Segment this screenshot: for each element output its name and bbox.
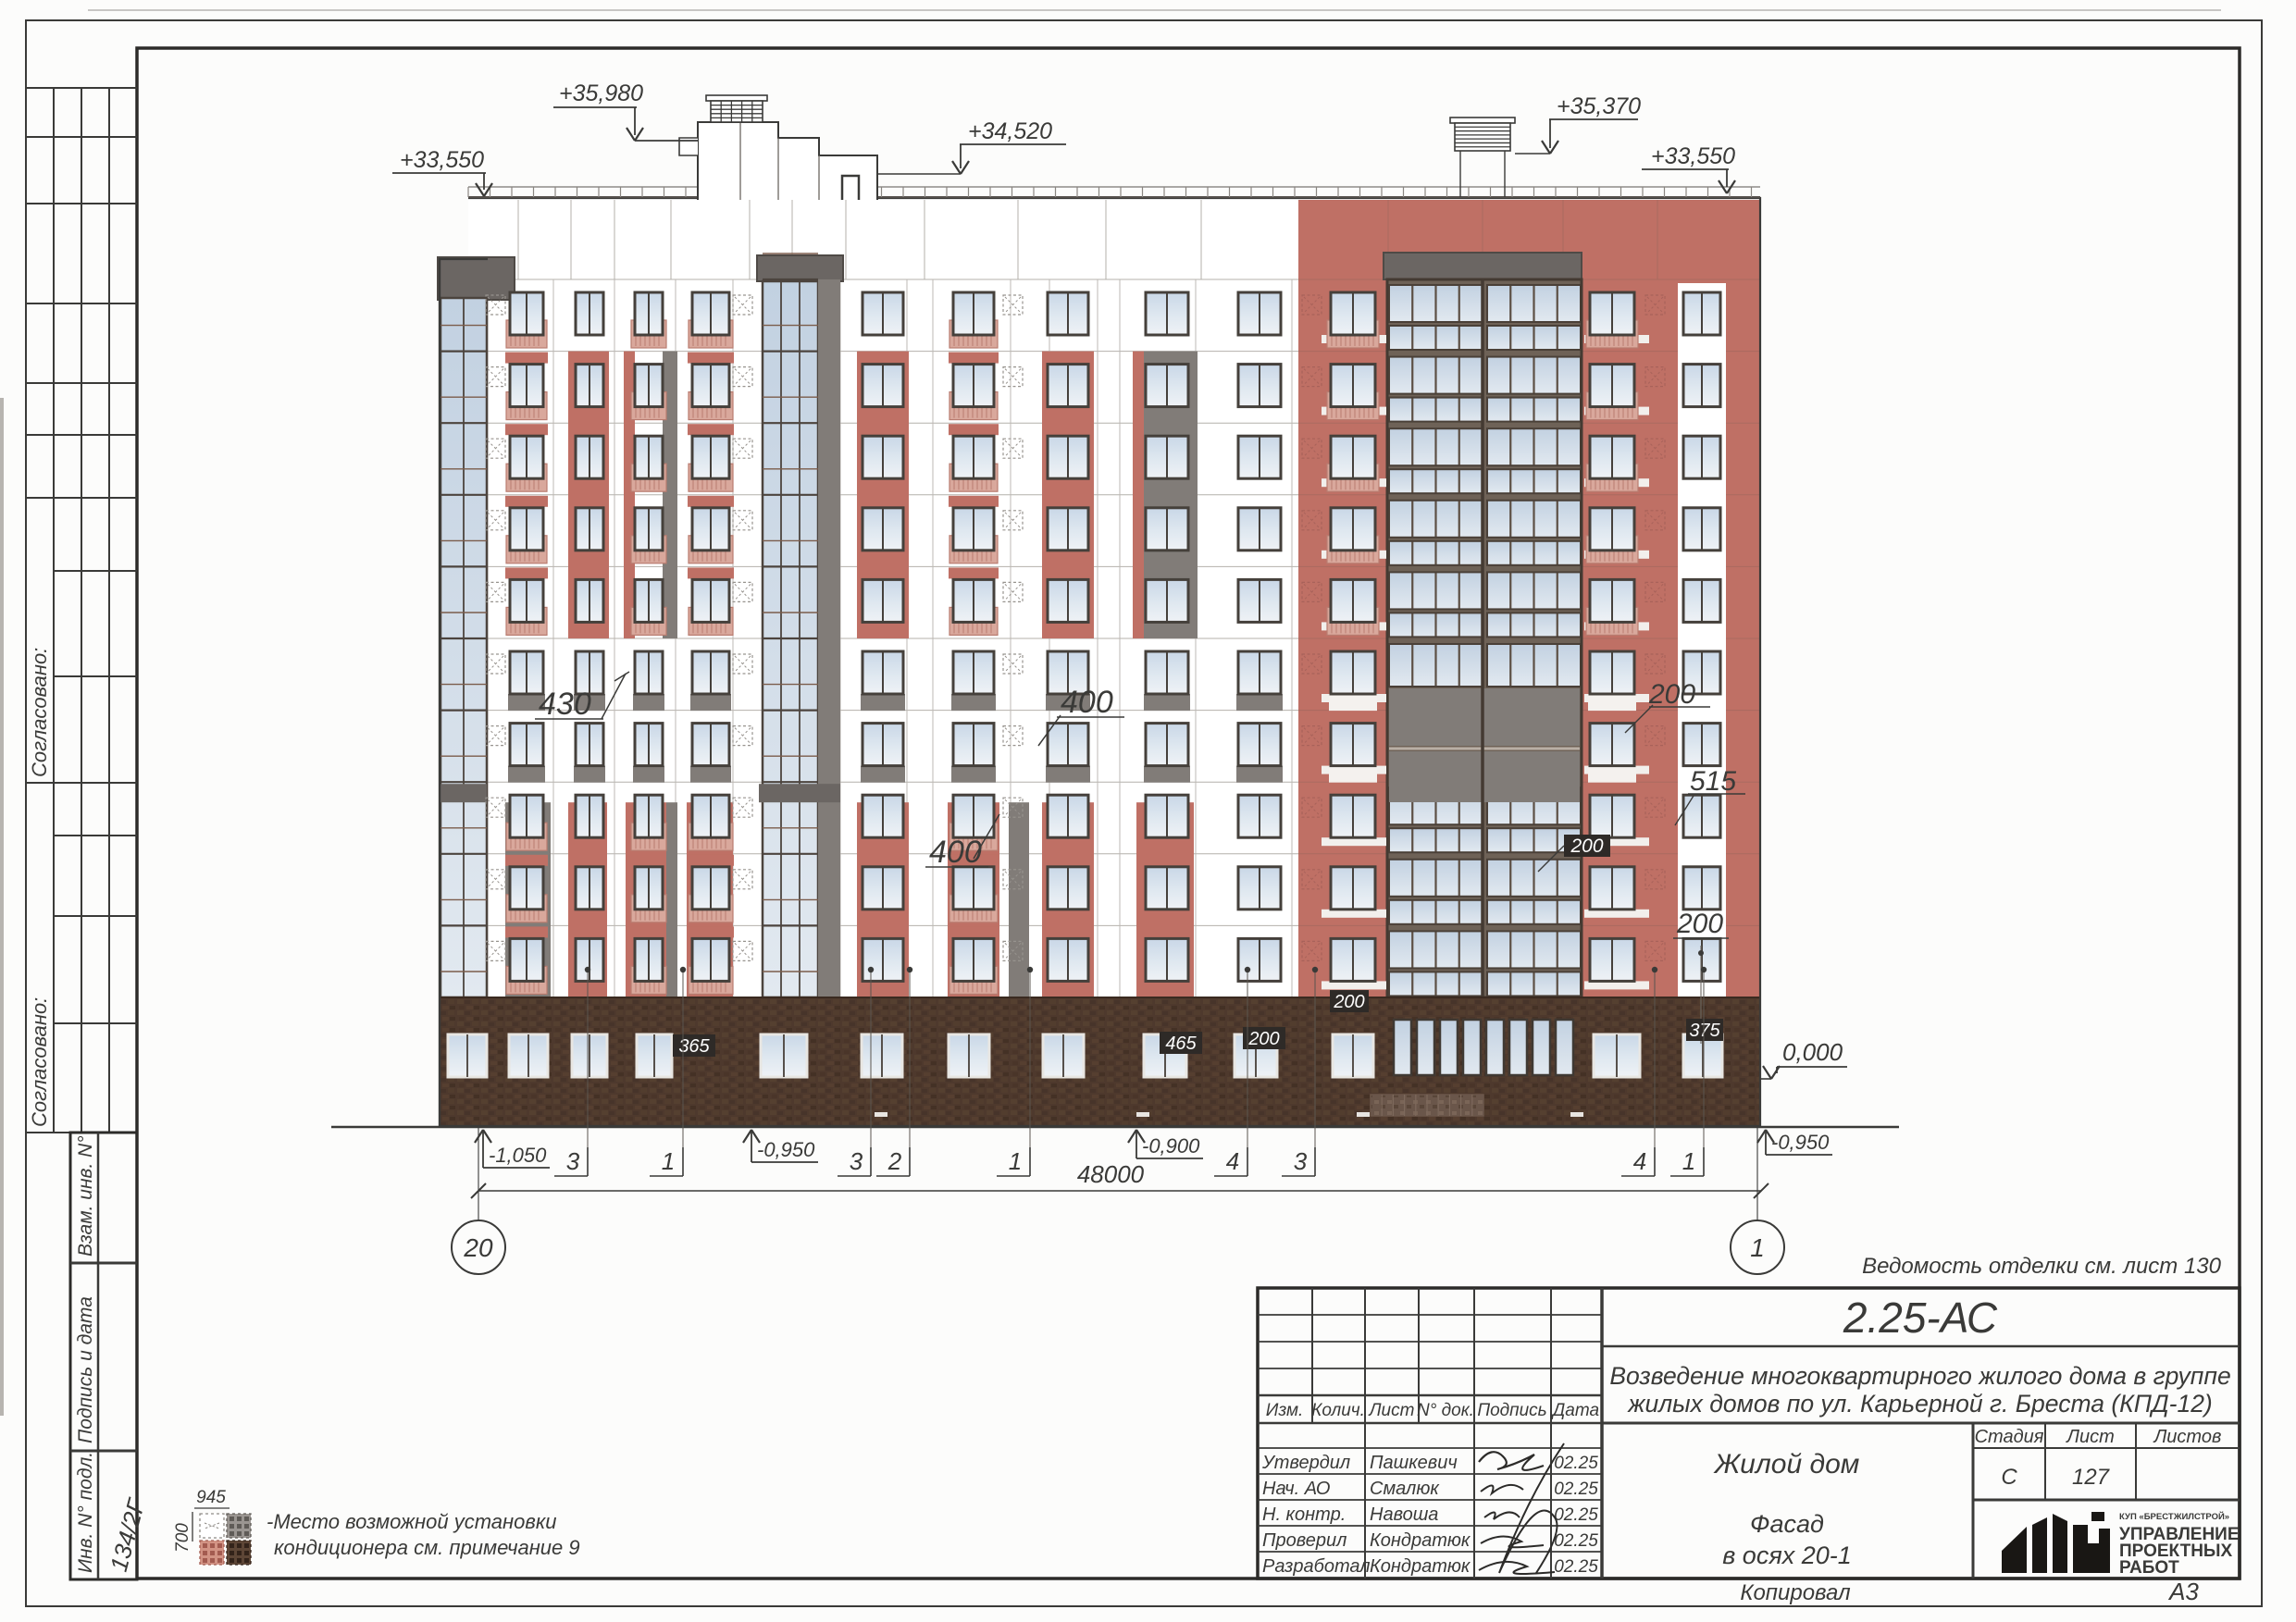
svg-text:Лист: Лист xyxy=(1368,1401,1415,1420)
svg-text:200: 200 xyxy=(1676,909,1723,939)
svg-text:Возведение многоквартирного жи: Возведение многоквартирного жилого дома … xyxy=(1609,1362,2230,1390)
svg-text:20: 20 xyxy=(463,1233,493,1262)
svg-text:02.25: 02.25 xyxy=(1554,1454,1598,1473)
svg-text:127: 127 xyxy=(2072,1465,2111,1490)
svg-text:3: 3 xyxy=(850,1147,863,1175)
svg-text:N° док.: N° док. xyxy=(1417,1401,1474,1420)
svg-text:С: С xyxy=(2001,1465,2017,1490)
svg-text:Фасад: Фасад xyxy=(1750,1510,1824,1538)
svg-text:+33,550: +33,550 xyxy=(400,147,484,173)
svg-text:1: 1 xyxy=(1009,1147,1022,1175)
svg-text:кондиционера см. примечание 9: кондиционера см. примечание 9 xyxy=(274,1536,580,1559)
svg-text:200: 200 xyxy=(1570,836,1603,857)
svg-text:А3: А3 xyxy=(2167,1578,2199,1605)
svg-text:Проверил: Проверил xyxy=(1262,1530,1347,1551)
svg-text:Инв. N° подл.: Инв. N° подл. xyxy=(75,1452,96,1573)
svg-text:2: 2 xyxy=(887,1147,902,1175)
svg-text:4: 4 xyxy=(1226,1147,1239,1175)
svg-text:Копировал: Копировал xyxy=(1740,1580,1851,1605)
svg-text:200: 200 xyxy=(1648,679,1695,710)
svg-text:Навоша: Навоша xyxy=(1370,1504,1438,1525)
svg-text:жилых домов по ул. Карьерной г: жилых домов по ул. Карьерной г. Бреста (… xyxy=(1627,1390,2213,1418)
svg-text:02.25: 02.25 xyxy=(1554,1480,1598,1499)
svg-text:Подпись и дата: Подпись и дата xyxy=(75,1296,96,1443)
svg-text:Н. контр.: Н. контр. xyxy=(1262,1504,1346,1525)
svg-text:3: 3 xyxy=(1294,1147,1308,1175)
svg-text:Изм.: Изм. xyxy=(1266,1401,1304,1420)
svg-text:+34,520: +34,520 xyxy=(968,118,1052,144)
svg-text:02.25: 02.25 xyxy=(1554,1557,1598,1577)
svg-text:РАБОТ: РАБОТ xyxy=(2119,1558,2179,1578)
svg-text:Согласовано:: Согласовано: xyxy=(28,997,51,1127)
svg-text:Кондратюк: Кондратюк xyxy=(1370,1556,1471,1577)
svg-text:1: 1 xyxy=(1750,1233,1765,1262)
svg-text:-0,900: -0,900 xyxy=(1142,1134,1200,1158)
svg-text:в осях 20-1: в осях 20-1 xyxy=(1722,1542,1852,1569)
svg-text:-Место возможной установки: -Место возможной установки xyxy=(267,1510,556,1533)
svg-text:400: 400 xyxy=(1061,685,1113,720)
svg-text:Лист: Лист xyxy=(2065,1427,2115,1447)
svg-text:Дата: Дата xyxy=(1551,1401,1599,1420)
svg-text:200: 200 xyxy=(1247,1029,1279,1049)
svg-text:0,000: 0,000 xyxy=(1782,1038,1843,1066)
svg-text:1: 1 xyxy=(1682,1147,1695,1175)
svg-text:945: 945 xyxy=(196,1488,226,1507)
svg-text:Листов: Листов xyxy=(2153,1427,2222,1447)
svg-text:Разработал: Разработал xyxy=(1262,1556,1371,1577)
svg-text:700: 700 xyxy=(173,1523,192,1553)
svg-text:Стадия: Стадия xyxy=(1975,1427,2044,1447)
svg-text:-0,950: -0,950 xyxy=(1771,1131,1830,1154)
svg-text:-0,950: -0,950 xyxy=(757,1138,815,1161)
svg-text:48000: 48000 xyxy=(1077,1160,1145,1188)
svg-text:4: 4 xyxy=(1633,1147,1646,1175)
svg-text:400: 400 xyxy=(929,835,982,870)
svg-text:465: 465 xyxy=(1165,1034,1197,1054)
svg-text:Колич.: Колич. xyxy=(1311,1401,1365,1420)
svg-text:Утвердил: Утвердил xyxy=(1261,1453,1350,1473)
svg-text:КУП «БРЕСТЖИЛСТРОЙ»: КУП «БРЕСТЖИЛСТРОЙ» xyxy=(2119,1511,2229,1522)
svg-text:515: 515 xyxy=(1690,766,1736,797)
svg-text:1: 1 xyxy=(662,1147,675,1175)
svg-text:Смалюк: Смалюк xyxy=(1370,1479,1440,1499)
svg-text:Жилой дом: Жилой дом xyxy=(1713,1449,1860,1480)
svg-text:430: 430 xyxy=(539,687,591,722)
svg-text:+33,550: +33,550 xyxy=(1651,143,1735,169)
svg-text:Нач. АО: Нач. АО xyxy=(1262,1479,1330,1499)
svg-text:Взам. инв. N°: Взам. инв. N° xyxy=(75,1135,96,1257)
svg-text:Согласовано:: Согласовано: xyxy=(28,648,51,777)
svg-text:2.25-АС: 2.25-АС xyxy=(1843,1294,1998,1342)
svg-text:Ведомость отделки см. лист 130: Ведомость отделки см. лист 130 xyxy=(1862,1254,2222,1279)
svg-text:200: 200 xyxy=(1333,992,1364,1012)
svg-text:02.25: 02.25 xyxy=(1554,1531,1598,1551)
svg-text:+35,370: +35,370 xyxy=(1557,93,1641,119)
svg-text:375: 375 xyxy=(1689,1021,1720,1041)
svg-text:Пашкевич: Пашкевич xyxy=(1370,1453,1458,1473)
svg-text:02.25: 02.25 xyxy=(1554,1505,1598,1525)
svg-text:3: 3 xyxy=(566,1147,580,1175)
svg-text:Кондратюк: Кондратюк xyxy=(1370,1530,1471,1551)
svg-text:Подпись: Подпись xyxy=(1477,1401,1546,1420)
svg-text:-1,050: -1,050 xyxy=(489,1144,547,1167)
svg-text:+35,980: +35,980 xyxy=(559,80,643,106)
